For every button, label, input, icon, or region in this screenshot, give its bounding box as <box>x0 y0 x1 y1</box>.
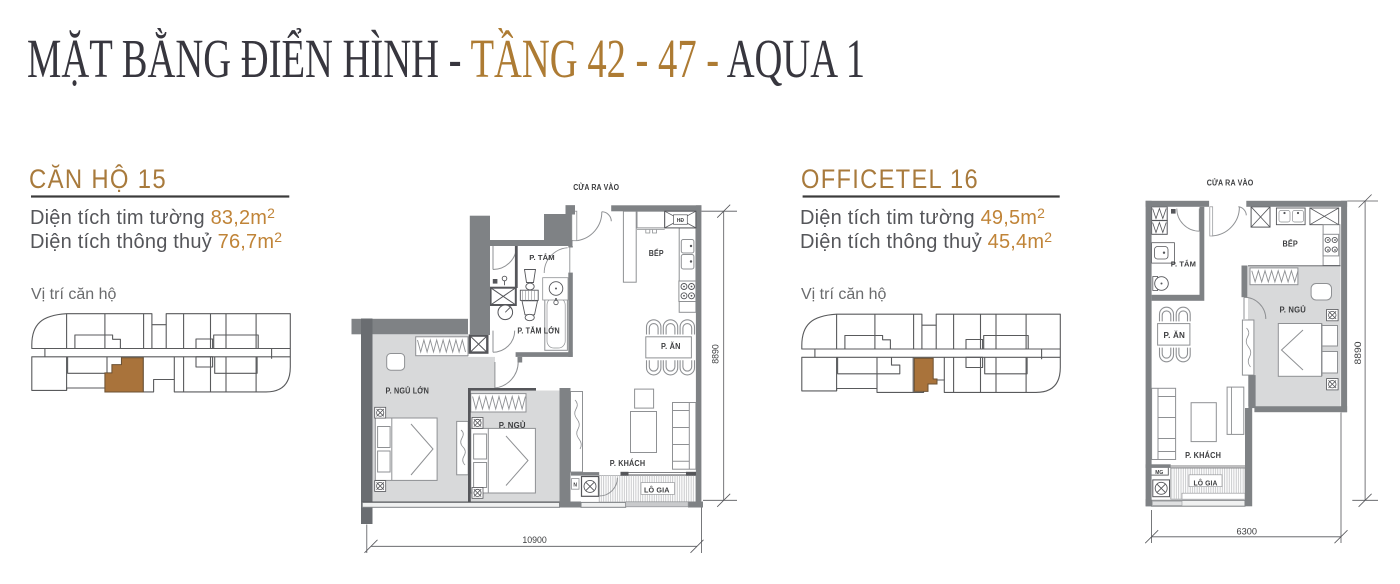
svg-text:P. ĂN: P. ĂN <box>661 341 681 351</box>
svg-text:CỬA RA VÀO: CỬA RA VÀO <box>573 181 619 192</box>
svg-text:6300: 6300 <box>1237 527 1258 538</box>
svg-text:MẶT BẰNG ĐIỂN HÌNH - TẦNG 42 -: MẶT BẰNG ĐIỂN HÌNH - TẦNG 42 - 47 - AQUA… <box>27 27 865 89</box>
svg-text:N: N <box>573 482 577 488</box>
svg-text:8890: 8890 <box>1353 342 1364 365</box>
svg-text:CĂN HỘ 15: CĂN HỘ 15 <box>29 163 167 194</box>
svg-text:P. TẮM: P. TẮM <box>1171 260 1196 269</box>
svg-text:BẾP: BẾP <box>649 248 664 258</box>
svg-text:CỬA RA VÀO: CỬA RA VÀO <box>1207 176 1254 187</box>
svg-text:8890: 8890 <box>711 344 722 364</box>
svg-text:P. NGỦ LỚN: P. NGỦ LỚN <box>386 385 430 396</box>
svg-text:LÔ GIA: LÔ GIA <box>644 486 670 495</box>
svg-text:P. ĂN: P. ĂN <box>1164 330 1186 340</box>
svg-text:MG: MG <box>1155 470 1163 476</box>
svg-text:P. TẮM: P. TẮM <box>529 253 555 262</box>
svg-text:P. TẮM LỚN: P. TẮM LỚN <box>517 324 560 335</box>
svg-text:Diện tích thông thuỷ 45,4m2: Diện tích thông thuỷ 45,4m2 <box>800 229 1052 253</box>
svg-text:P. NGỦ: P. NGỦ <box>1279 303 1306 314</box>
svg-text:Diện tích tim tường 49,5m2: Diện tích tim tường 49,5m2 <box>800 205 1045 229</box>
svg-text:HĐ: HĐ <box>677 218 685 224</box>
svg-text:P. KHÁCH: P. KHÁCH <box>610 458 646 468</box>
svg-text:10900: 10900 <box>522 535 547 546</box>
svg-text:Vị trí căn hộ: Vị trí căn hộ <box>31 286 116 303</box>
svg-text:P. NGỦ: P. NGỦ <box>499 419 526 430</box>
svg-text:OFFICETEL 16: OFFICETEL 16 <box>801 164 979 194</box>
svg-text:BẾP: BẾP <box>1282 238 1298 248</box>
svg-text:Vị trí căn hộ: Vị trí căn hộ <box>801 286 886 303</box>
svg-text:LÔ GIA: LÔ GIA <box>1194 479 1218 488</box>
svg-text:P. KHÁCH: P. KHÁCH <box>1185 450 1221 460</box>
svg-text:Diện tích thông thuỷ 76,7m2: Diện tích thông thuỷ 76,7m2 <box>30 229 282 253</box>
svg-text:Diện tích tim tường 83,2m2: Diện tích tim tường 83,2m2 <box>30 205 275 229</box>
